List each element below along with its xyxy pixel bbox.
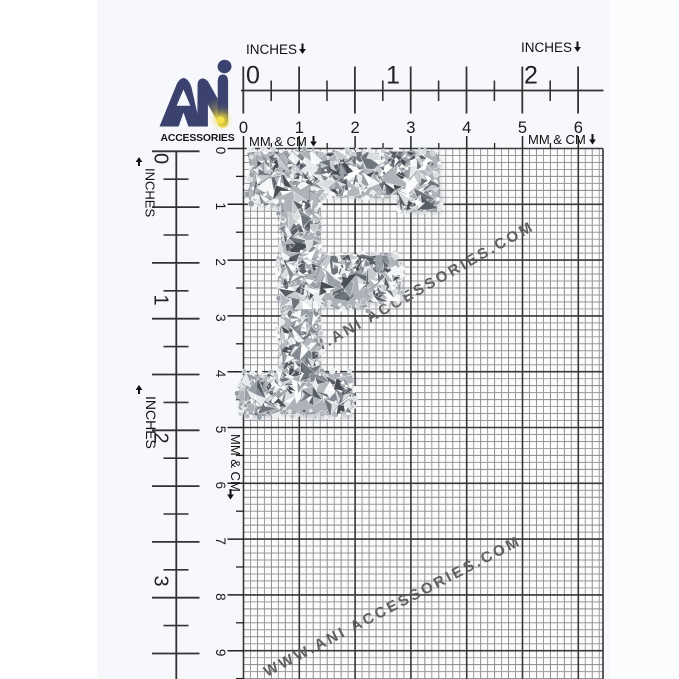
svg-text:9: 9: [213, 649, 228, 657]
svg-text:5: 5: [518, 119, 527, 137]
svg-text:2: 2: [213, 258, 228, 266]
svg-text:7: 7: [213, 537, 228, 545]
svg-text:0: 0: [239, 119, 248, 137]
svg-text:ACCESSORIES: ACCESSORIES: [161, 133, 235, 144]
svg-text:2: 2: [351, 119, 360, 137]
svg-text:4: 4: [462, 119, 471, 137]
svg-text:3: 3: [150, 575, 172, 586]
svg-text:0: 0: [213, 147, 228, 155]
svg-text:4: 4: [213, 370, 228, 378]
svg-text:1: 1: [150, 294, 172, 305]
svg-text:0: 0: [246, 62, 260, 90]
svg-text:3: 3: [406, 119, 415, 137]
svg-text:MM & CM: MM & CM: [528, 132, 586, 147]
svg-text:8: 8: [213, 593, 228, 601]
svg-text:INCHES: INCHES: [246, 42, 297, 57]
svg-text:3: 3: [213, 314, 228, 322]
svg-text:MM & CM: MM & CM: [228, 434, 243, 492]
svg-text:6: 6: [213, 482, 228, 490]
svg-text:INCHES: INCHES: [143, 396, 159, 449]
svg-text:MM & CM: MM & CM: [249, 134, 307, 149]
svg-text:INCHES: INCHES: [143, 168, 158, 217]
svg-text:INCHES: INCHES: [521, 40, 572, 55]
svg-text:1: 1: [386, 62, 400, 90]
svg-text:1: 1: [213, 203, 228, 211]
svg-text:2: 2: [524, 62, 538, 90]
svg-text:0: 0: [150, 153, 172, 164]
svg-text:5: 5: [213, 426, 228, 434]
